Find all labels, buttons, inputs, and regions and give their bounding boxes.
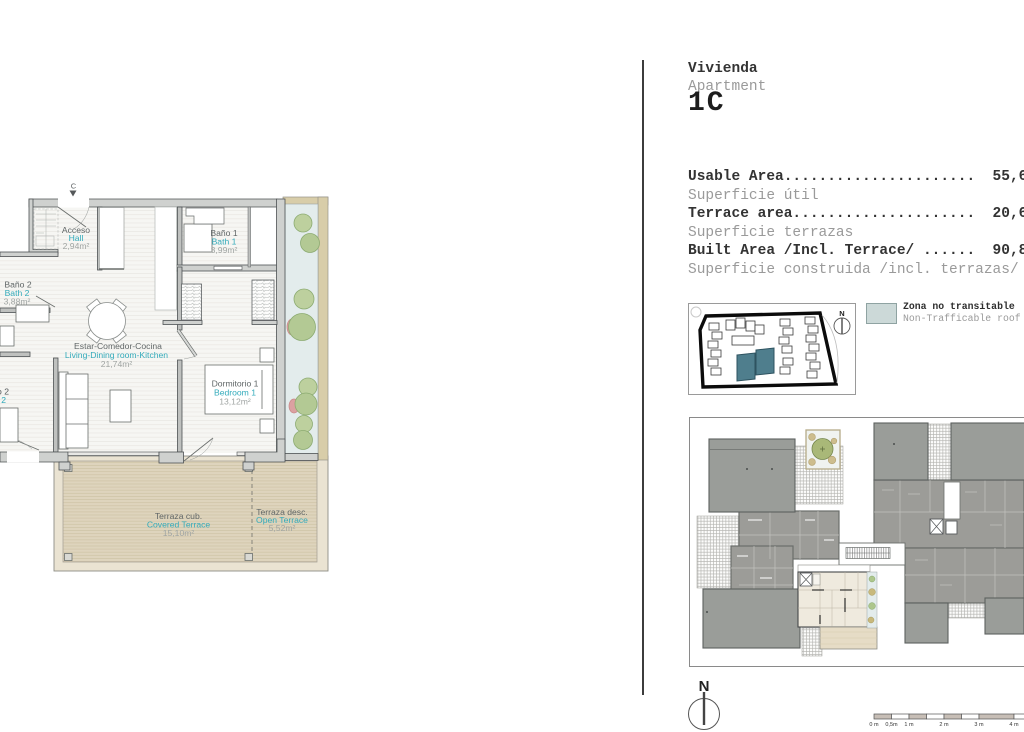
svg-text:0 m: 0 m [869,722,879,728]
svg-text:3 m: 3 m [974,722,984,728]
svg-text:21,74m²: 21,74m² [101,359,133,369]
svg-text:1 m: 1 m [904,722,914,728]
svg-text:13,12m²: 13,12m² [219,397,251,407]
svg-text:0,5m: 0,5m [885,722,898,728]
svg-text:Bedroom 2: Bedroom 2 [0,395,6,405]
svg-text:4 m: 4 m [1009,722,1019,728]
svg-text:2 m: 2 m [939,722,949,728]
svg-text:C: C [71,182,77,191]
svg-text:N: N [839,309,844,318]
svg-text:3,99m²: 3,99m² [211,245,238,255]
svg-text:2,94m²: 2,94m² [63,241,90,251]
svg-text:15,10m²: 15,10m² [163,528,195,538]
svg-text:5,52m²: 5,52m² [269,523,296,533]
svg-text:N: N [699,678,710,695]
svg-text:3,88m²: 3,88m² [4,297,31,307]
